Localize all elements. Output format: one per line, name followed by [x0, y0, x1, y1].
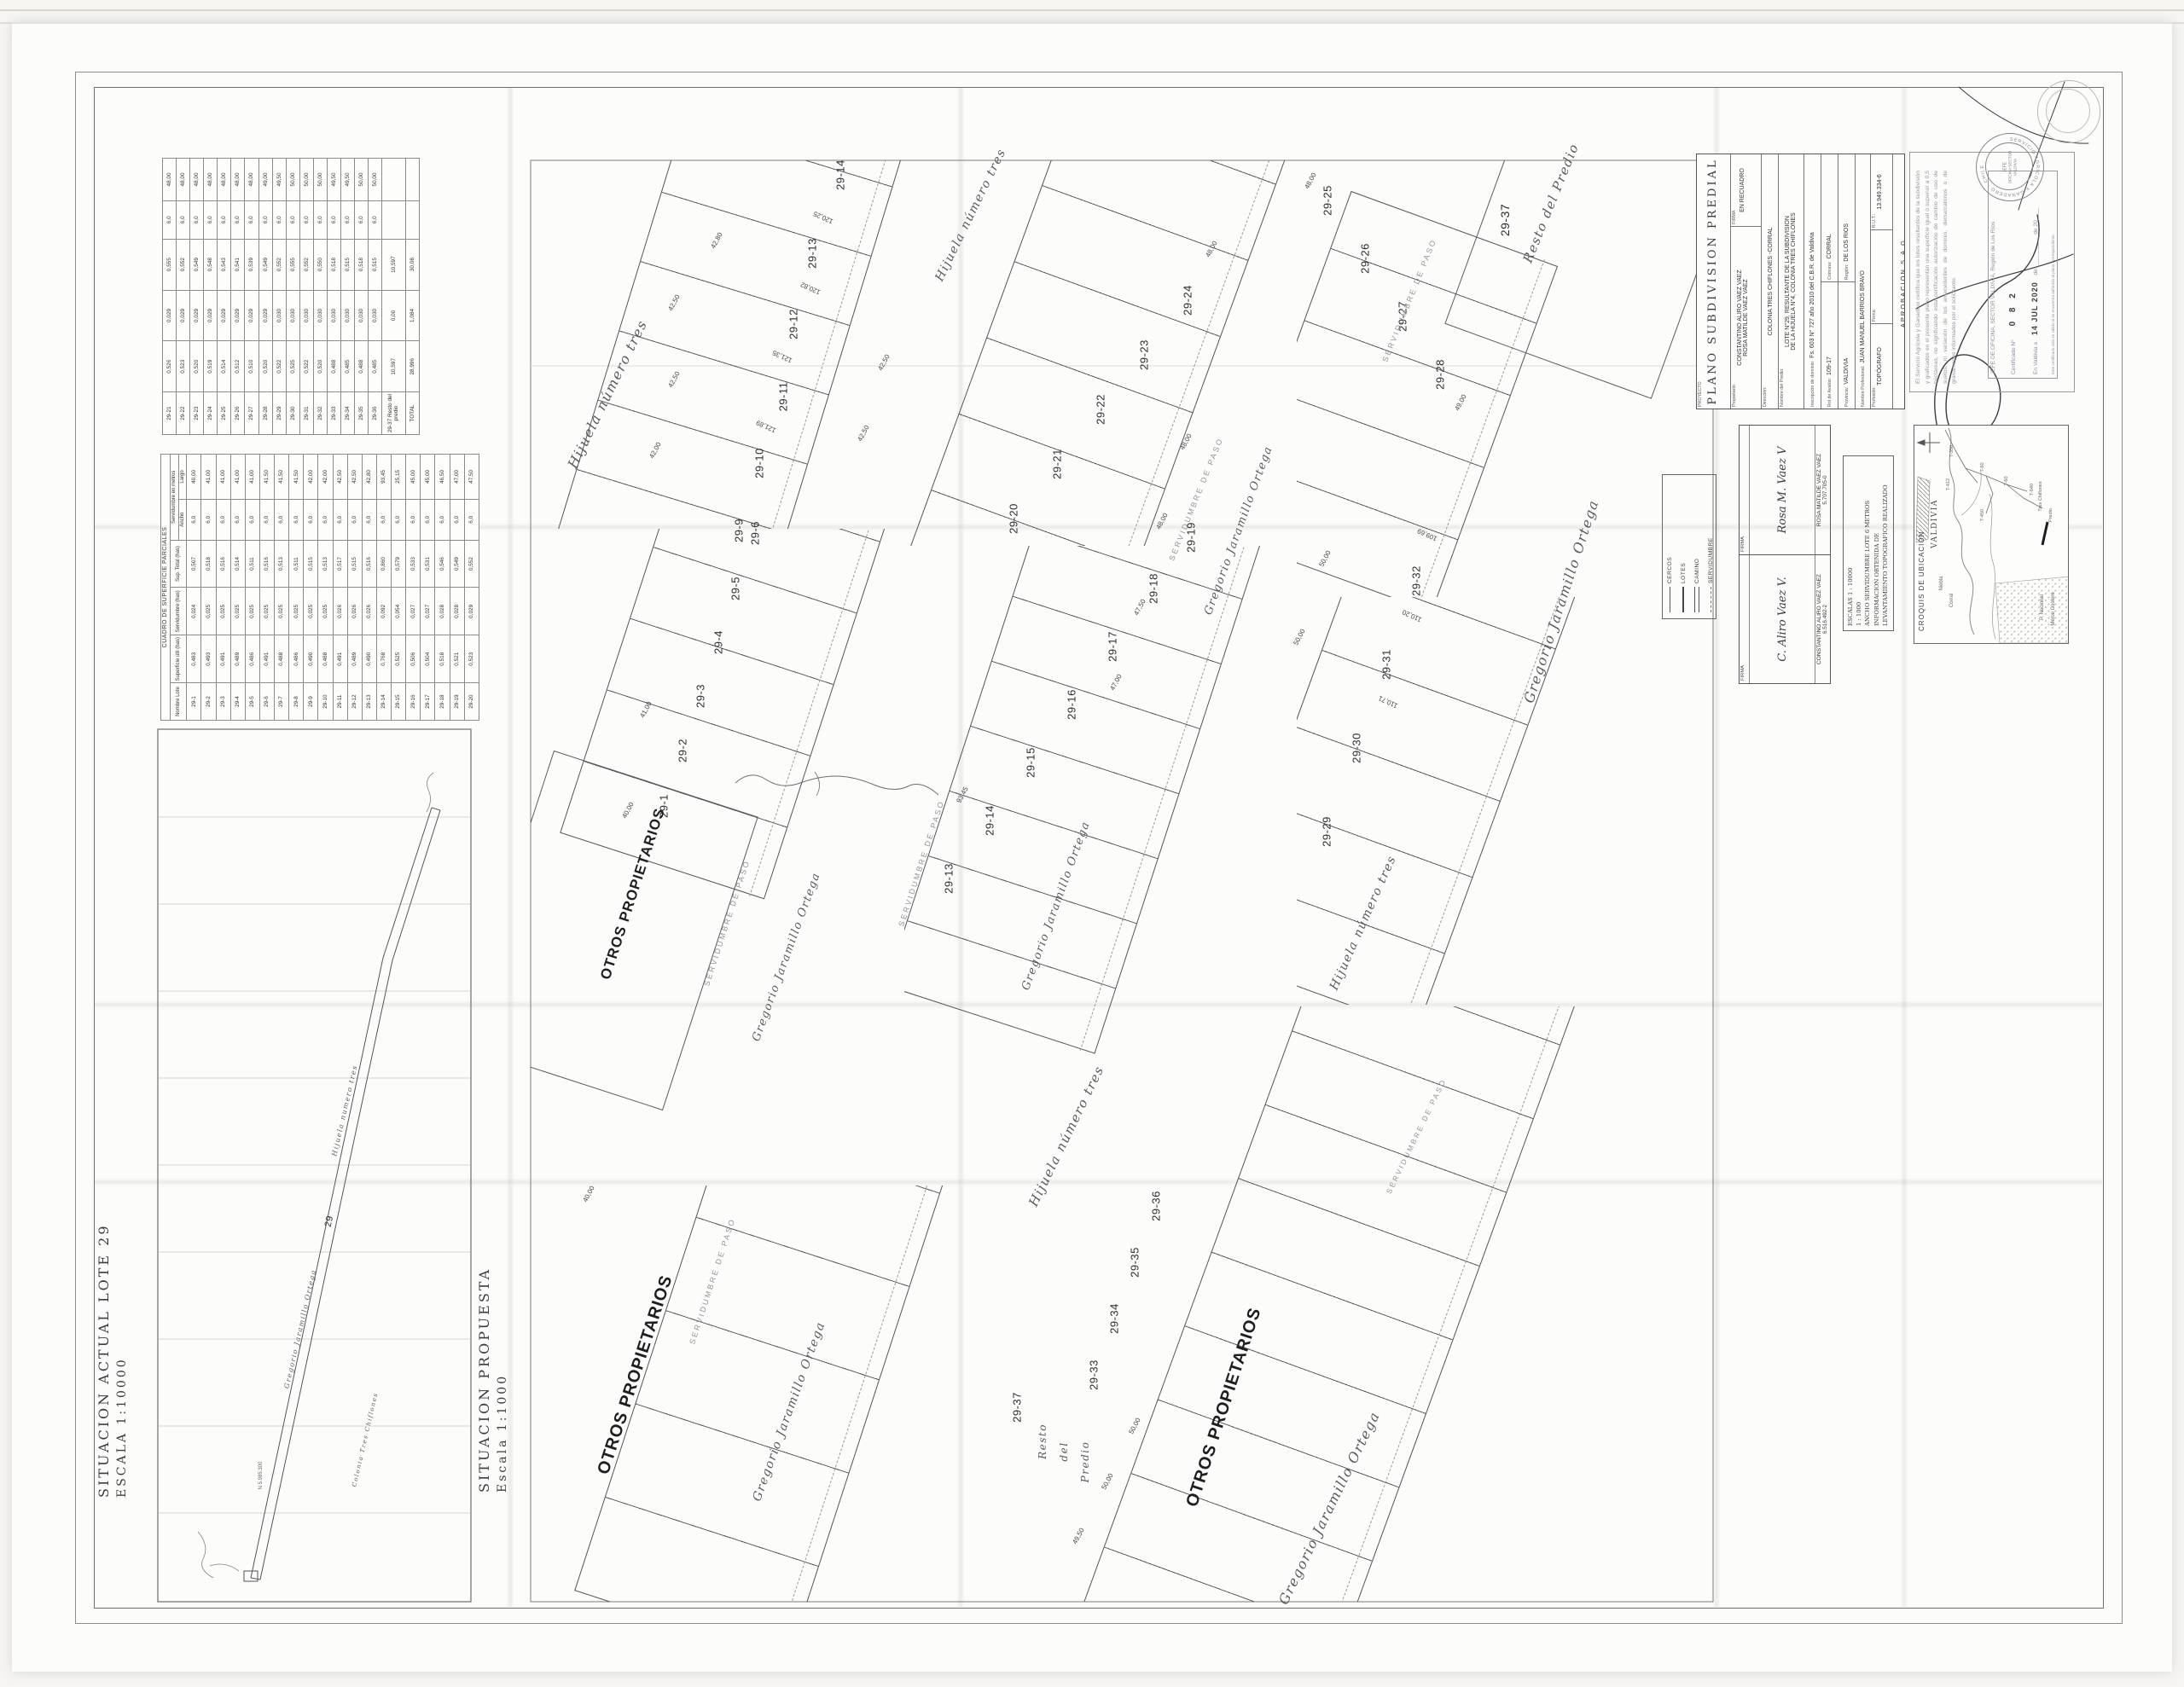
plan-label: 48,00	[1204, 240, 1218, 258]
lot-label-29-3: 29-3	[694, 684, 707, 708]
table-cell: 0,030	[327, 290, 340, 341]
table-cell: 0,517	[333, 540, 347, 588]
lot-label-29-36: 29-36	[1150, 1191, 1163, 1221]
region-label: Región:	[1844, 264, 1850, 280]
provincia-value: VALDIVIA	[1844, 358, 1850, 385]
legend-item-camino: CAMINO	[1690, 478, 1704, 616]
plan-label: 50,00	[1292, 628, 1306, 646]
plan-label: 50,00	[1127, 1417, 1141, 1435]
lot-label-29-14: 29-14	[834, 159, 847, 190]
table-cell: 0,507	[187, 540, 201, 588]
table-cell: 0,579	[392, 540, 406, 588]
table-cell: 0,531	[421, 540, 435, 588]
table-cell: 40,00	[187, 455, 201, 500]
direccion-value: COLONIA TRES CHIFLONES -CORRAL	[1768, 156, 1774, 407]
neighbor-label: Gregorio Jaramillo Ortega	[750, 871, 823, 1043]
lot-label-29-29: 29-29	[1321, 816, 1333, 847]
table-cell: 48,00	[231, 159, 245, 201]
table-cell: 0,512	[231, 341, 245, 392]
table-cell: 6,0	[362, 499, 376, 540]
table-row: 29-280,5200,0290,5496,049,00	[258, 159, 272, 435]
table-cell: 0,518	[355, 239, 369, 290]
hijuela-label: Hijuela número tres	[932, 147, 1008, 284]
table-cell: 0,520	[258, 341, 272, 392]
table-cell: 42,50	[333, 455, 347, 500]
table-row: 29-180,5180,0280,5466,046,50	[435, 455, 450, 721]
provincia-label: Provincia:	[1844, 387, 1850, 407]
table-cell: 0,548	[204, 239, 218, 290]
lotes-line-sample	[1682, 587, 1684, 612]
lot-label-29-32: 29-32	[1410, 565, 1423, 596]
plan-label: 50,00	[1317, 549, 1332, 568]
situacion-propuesta-caption: SITUACION PROPUESTA Escala 1:1000	[476, 1235, 531, 1493]
servidumbre-label: SERVIDUMBRE DE PASO	[688, 1217, 736, 1346]
table-cell: 29-23	[190, 392, 204, 435]
signature-box-rosa: FIRMA Rosa M. Vaez V ROSA MATILDE VAEZ V…	[1739, 425, 1831, 554]
table-cell: 0,523	[177, 341, 190, 392]
table-cell: 0,549	[190, 239, 204, 290]
table-cell: 6,0	[163, 200, 177, 239]
rol-value: 109-17	[1827, 357, 1833, 375]
table-cell: 0,523	[464, 635, 479, 683]
otros-propietarios-label: OTROS PROPIETARIOS	[597, 806, 669, 982]
table-cell: 6,0	[177, 200, 190, 239]
table-cell: 0,550	[313, 239, 327, 290]
table-row: 29-170,5040,0270,5316,045,00	[421, 455, 435, 721]
table-cell: 0,526	[163, 341, 177, 392]
table-row: 29-330,4880,0300,5186,049,50	[327, 159, 340, 435]
table-superficie-parciales: CUADRO DE SUPERFICIE PARCIALES Nombre Lo…	[160, 454, 479, 721]
col-header: Ancho	[178, 499, 187, 540]
note-line: LEVANTAMIENTO TOPOGRAFICO REALIZADO	[1881, 461, 1890, 626]
plan-label: 48,00	[1303, 171, 1317, 190]
table-row: 29-220,5230,0290,5526,048,00	[177, 159, 190, 435]
plan-label: Niebla	[1939, 576, 1944, 590]
table-cell: 0,486	[289, 635, 304, 683]
plan-label: T-450	[1980, 509, 1985, 521]
table-cell	[405, 159, 419, 201]
plan-label: T-412	[1946, 478, 1951, 490]
table-cell: 29-20	[464, 683, 479, 721]
table-cell: 29-10	[318, 683, 333, 721]
table-cell: 6,0	[231, 200, 245, 239]
table-cell	[405, 200, 419, 239]
table-row: 29-300,5250,0300,5556,050,00	[286, 159, 299, 435]
table-cell: 47,50	[464, 455, 479, 500]
table-cell: 29-15	[392, 683, 406, 721]
table-cell: 0,054	[392, 588, 406, 635]
lot-label-29-20: 29-20	[1008, 503, 1020, 534]
signature-boxes: FIRMA C. Aliro Vaez V. CONSTANTINO ALIRO…	[1739, 425, 1833, 684]
table-cell: 0,030	[369, 290, 382, 341]
table-cell: 48,00	[177, 159, 190, 201]
table-row: 29-160,5060,0270,5336,045,00	[406, 455, 421, 721]
table-cell: 0,025	[304, 588, 318, 635]
table-cell: 0,029	[218, 290, 231, 341]
table-cell: 0,029	[190, 290, 204, 341]
table-row: 29-250,5140,0290,5436,048,00	[218, 159, 231, 435]
comuna-value: CORRAL	[1827, 234, 1833, 258]
table-cell	[382, 159, 405, 201]
certificado-label: Certificado N°	[2011, 339, 2017, 374]
table-cell: 6,0	[299, 200, 313, 239]
table-cell: 0,518	[327, 239, 340, 290]
plan-label: 49,00	[1453, 393, 1467, 412]
lot-label-29-15: 29-15	[1025, 747, 1037, 778]
table-cell: 0,029	[163, 290, 177, 341]
lot-label-29-11: 29-11	[777, 382, 790, 412]
table-cell: 0,549	[450, 540, 464, 588]
plan-title: PLANO SUBDIVISION PREDIAL	[1706, 156, 1719, 407]
profesional-label: Nombre Profesional:	[1861, 366, 1866, 407]
table-cell: 0,029	[464, 588, 479, 635]
table-cell: 29-5	[245, 683, 259, 721]
table-cell: 0,552	[299, 239, 313, 290]
hijuela-label: Hijuela número tres	[565, 317, 651, 471]
col-header-group: Servidumbre en metros	[170, 455, 178, 541]
proyecto-label: PROYECTO	[1698, 156, 1703, 407]
cercos-line-sample	[1670, 587, 1670, 612]
situacion-propuesta-title: SITUACION PROPUESTA	[476, 1235, 492, 1493]
table-cell: 6,0	[464, 499, 479, 540]
table-cell: 45,00	[421, 455, 435, 500]
plan-label: 47,50	[1132, 598, 1147, 617]
table-cell: 29-14	[376, 683, 391, 721]
table-cell: 6,0	[318, 499, 333, 540]
table-cell: 0,493	[201, 635, 216, 683]
table-cell: 0,026	[333, 588, 347, 635]
note-line: 1 : 1000	[1855, 461, 1863, 626]
neighbor-label: Gregorio Jaramillo Ortega	[282, 1268, 317, 1389]
table-cell: 1,084	[405, 290, 419, 341]
table-cell: 6,0	[392, 499, 406, 540]
table-cell: 0,511	[289, 540, 304, 588]
table-cell: 6,0	[450, 499, 464, 540]
table-cell: 41,00	[201, 455, 216, 500]
table-row: 29-210,5260,0290,5556,048,00	[163, 159, 177, 435]
plan-label: 42,50	[876, 353, 891, 372]
table-cell: 0,515	[369, 239, 382, 290]
table-cell: 0,025	[230, 588, 245, 635]
table-row: 29-20,4930,0250,5186,041,00	[201, 455, 216, 721]
table-cell: 49,50	[327, 159, 340, 201]
plan-label: 41,00	[638, 700, 653, 719]
table-cell: 0,768	[376, 635, 391, 683]
table-cell: 0,485	[369, 341, 382, 392]
inscripcion-label: Inscripción de dominio:	[1810, 361, 1815, 407]
lot-label-29-2: 29-2	[677, 739, 689, 762]
table-cell: 0,549	[258, 239, 272, 290]
table-cell: 0,520	[313, 341, 327, 392]
table-cell: 6,0	[201, 499, 216, 540]
croquis-valdivia-label: VALDIVIA	[1931, 499, 1939, 548]
table-cell: 29-3	[216, 683, 230, 721]
table-cell: 0,026	[347, 588, 362, 635]
lot-label-29-30: 29-30	[1350, 733, 1363, 763]
table-cell: 0,030	[272, 290, 286, 341]
plan-label: Resto	[1037, 1423, 1048, 1459]
table-cell: 0,519	[204, 341, 218, 392]
plan-label: Merce Costero	[2051, 592, 2056, 625]
lot-label-29-35: 29-35	[1129, 1247, 1141, 1278]
table-row: TOTAL28,9961,08430,08	[405, 159, 419, 435]
table-row: 29-140,7680,0920,8606,093,45	[376, 455, 391, 721]
table-cell: 42,00	[304, 455, 318, 500]
table-cell: 6,0	[289, 499, 304, 540]
table-cell: 29-24	[204, 392, 218, 435]
table-cell: 0,555	[286, 239, 299, 290]
table-cell: 0,539	[245, 239, 258, 290]
table-row: 29-150,5250,0540,5796,025,15	[392, 455, 406, 721]
table-row: 29-240,5190,0290,5486,048,00	[204, 159, 218, 435]
table-cell: 29-19	[450, 683, 464, 721]
table-cell: 29-31	[299, 392, 313, 435]
table-cell: 0,860	[376, 540, 391, 588]
lot-label-29-9: 29-9	[733, 519, 746, 542]
table-cell: 6,0	[406, 499, 421, 540]
note-line: INFORMACION OBTENIDA DE	[1873, 461, 1881, 626]
table-cell: 29-8	[289, 683, 304, 721]
neighbor-label: Gregorio Jaramillo Ortega	[1275, 1409, 1383, 1608]
table-cell: 0,506	[406, 635, 421, 683]
table-row: 29-110,4910,0260,5176,042,50	[333, 455, 347, 721]
plan-label: 50,00	[1100, 1472, 1114, 1491]
table-row: 29-80,4860,0250,5116,041,50	[289, 455, 304, 721]
col-header: Sup. Total (has)	[170, 540, 186, 588]
table-cell: 29-4	[230, 683, 245, 721]
table-cell: 6,0	[327, 200, 340, 239]
comuna-label: Comuna:	[1827, 262, 1833, 281]
table-cell: 0,027	[406, 588, 421, 635]
lot-label-29-5: 29-5	[729, 577, 742, 600]
certificado-numero: 0 8 2	[2008, 290, 2018, 326]
table-cell: 0,525	[392, 635, 406, 683]
plan-label: 110,71	[1377, 694, 1398, 710]
table-cell: 0,026	[362, 588, 376, 635]
aprobacion-sag-label: APROBACION S.A.G.	[1899, 235, 1904, 328]
table-cell: 0,488	[327, 341, 340, 392]
table-cell: 0,504	[421, 635, 435, 683]
table-cell: 29-1	[187, 683, 201, 721]
table-cell: 6,0	[421, 499, 435, 540]
lot-label-29-21: 29-21	[1051, 449, 1064, 479]
table-cell: 41,50	[289, 455, 304, 500]
table-cell: 48,00	[204, 159, 218, 201]
neighbor-label: Gregorio Jaramillo Ortega	[1520, 497, 1601, 704]
neighbor-label: Gregorio Jaramillo Ortega	[1019, 820, 1093, 992]
plan-label: T-350	[1949, 445, 1955, 457]
svg-text:SERVICIO AGRICOLA Y GANADERO ·: SERVICIO AGRICOLA Y GANADERO · CHILE ·	[1980, 137, 2040, 197]
table-cell: 0,552	[464, 540, 479, 588]
plan-label: 121,89	[755, 419, 777, 434]
table-cell: 29-2	[201, 683, 216, 721]
table-cell: 50,00	[369, 159, 382, 201]
lot-label-29-6: 29-6	[749, 521, 762, 545]
situacion-propuesta-scale: Escala 1:1000	[496, 1235, 509, 1493]
table-row: 29-260,5120,0290,5416,048,00	[231, 159, 245, 435]
lot-label-29-31: 29-31	[1380, 649, 1393, 680]
fine-print: Este certificado sólo es válido si se en…	[2051, 175, 2055, 374]
situacion-actual-caption: SITUACION ACTUAL LOTE 29 ESCALA 1:10000	[96, 1235, 150, 1498]
rut-value: 13.949.334-6	[1877, 156, 1883, 228]
col-header: Largo	[178, 455, 187, 500]
table-row: 29-50,4860,0250,5116,041,00	[245, 455, 259, 721]
table-cell: 0,490	[304, 635, 318, 683]
table-cell: 0,491	[216, 635, 230, 683]
table-cell: 50,00	[286, 159, 299, 201]
lot-label-29-23: 29-23	[1138, 339, 1151, 370]
note-line: ESCALAS 1 : 10000	[1846, 461, 1855, 626]
legend-item-lotes: LOTES	[1676, 478, 1690, 616]
table-cell: 50,00	[313, 159, 327, 201]
table-cell: 0,533	[406, 540, 421, 588]
table-cell: 29-22	[177, 392, 190, 435]
table-cell: 0,521	[450, 635, 464, 683]
table-cell: 29-29	[272, 392, 286, 435]
table-cell: 0,543	[218, 239, 231, 290]
firma-label: FIRMA	[1732, 156, 1737, 224]
table-cell: 0,520	[190, 341, 204, 392]
table-cell: 48,00	[163, 159, 177, 201]
profesion-value: TOPÓGRAFO	[1877, 326, 1883, 407]
lot-label-29-13: 29-13	[806, 238, 819, 269]
table-cell: 0,516	[362, 540, 376, 588]
legend-item-cercos: CERCOS	[1663, 478, 1676, 616]
signature-script: Rosa M. Vaez V	[1750, 426, 1815, 554]
col-header: Servidumbre (has)	[170, 588, 186, 635]
otros-propietarios-label: OTROS PROPIETARIOS	[594, 1272, 677, 1476]
table-cell: 0,491	[259, 635, 274, 683]
sag-certificate-text-block: El Servicio Agrícola y Ganadero certific…	[1914, 171, 1986, 384]
plan-label: T-640	[2030, 484, 2035, 496]
table-cell: 0,546	[435, 540, 450, 588]
plan-label: 42,50	[856, 424, 870, 443]
profesional-value: JUAN MANUEL BARRIOS BRAVO	[1860, 270, 1866, 363]
grid-coordinate-label: N 5.985.300	[258, 1462, 264, 1490]
table-cell: 29-37 Resto del predio	[382, 392, 405, 435]
lot-label-29-24: 29-24	[1182, 285, 1194, 316]
table-cell: 6,0	[190, 200, 204, 239]
signer-name: CONSTANTINO ALIRO VAEZ VAEZ	[1815, 555, 1822, 683]
table-cell: 29-30	[286, 392, 299, 435]
plan-label: P. Nacional	[2040, 594, 2045, 620]
table-cell: 50,00	[355, 159, 369, 201]
firma-header: FIRMA	[1740, 555, 1750, 683]
situacion-actual-title: SITUACION ACTUAL LOTE 29	[96, 1235, 112, 1498]
table-cell: 46,50	[435, 455, 450, 500]
table-cell: 0,030	[341, 290, 355, 341]
table-cell: 0,486	[245, 635, 259, 683]
table-cell: 6,0	[435, 499, 450, 540]
plan-label: Tres Chiflones	[2038, 481, 2043, 511]
hijuela-label: Hijuela número tres	[1327, 854, 1399, 993]
lot-label-29-26: 29-26	[1359, 243, 1372, 274]
table-superficie-continuation: 29-210,5260,0290,5556,048,0029-220,5230,…	[162, 158, 420, 435]
table-cell: 0,514	[230, 540, 245, 588]
table-cell: 0,025	[245, 588, 259, 635]
table-row: 29-320,5200,0300,5506,050,00	[313, 159, 327, 435]
table-cell: 0,491	[333, 635, 347, 683]
hijuela-label: Hijuela numero tres	[330, 1064, 359, 1157]
table-cell: 42,50	[347, 455, 362, 500]
region-value: DE LOS RIOS	[1844, 223, 1850, 262]
table-cell: 29-27	[245, 392, 258, 435]
table-cell: 0,518	[435, 635, 450, 683]
table-cell: 29-28	[258, 392, 272, 435]
table-cell: 29-7	[275, 683, 289, 721]
propietario-1: CONSTANTINO ALIRO VAEZ VAEZ	[1737, 229, 1743, 407]
table-cell: 10,597	[382, 341, 405, 392]
lot-label-29-25: 29-25	[1321, 185, 1334, 216]
table-cell: 29-35	[355, 392, 369, 435]
servidumbre-label: SERVIDUMBRE DE PASO	[1385, 1077, 1448, 1196]
lot-label-29-37: 29-37	[1011, 1392, 1024, 1423]
table-cell: 49,50	[341, 159, 355, 201]
legend-item-servidumbre: SERVIDUMBRE	[1704, 478, 1717, 616]
table-cell: 29-32	[313, 392, 327, 435]
plan-label: 93,45	[955, 786, 969, 804]
table-cell: 0,516	[216, 540, 230, 588]
plan-label: 120,82	[799, 281, 822, 296]
table-cell: 93,45	[376, 455, 391, 500]
neighbor-label: Gregorio Jaramillo Ortega	[750, 1319, 828, 1503]
table-cell: 45,00	[406, 455, 421, 500]
table-cell: 0,092	[376, 588, 391, 635]
table-cell: 0,030	[286, 290, 299, 341]
predio-1: LOTE N°29, RESULTANTE DE LA SUBDIVISION	[1785, 156, 1791, 407]
table-cell: 0,030	[299, 290, 313, 341]
table-cell: 0,025	[318, 588, 333, 635]
table-cell: 29-21	[163, 392, 177, 435]
lot-label-29-17: 29-17	[1107, 631, 1119, 662]
table-row: 29-270,5100,0290,5396,048,00	[245, 159, 258, 435]
signature-script: C. Aliro Vaez V.	[1750, 555, 1815, 683]
lot-29-label: 29	[323, 1215, 336, 1228]
table-cell: 0,555	[163, 239, 177, 290]
col-header: Nombre Lote	[170, 683, 186, 721]
table-cell: 29-36	[369, 392, 382, 435]
table-cell: 0,552	[272, 239, 286, 290]
plan-label: 42,50	[666, 293, 681, 312]
table-cell: 0,029	[245, 290, 258, 341]
table-cell: 0,513	[318, 540, 333, 588]
table-row: 29-340,4850,0300,5156,049,50	[341, 159, 355, 435]
plan-label: Corral	[1949, 594, 1955, 607]
otros-propietarios-label: OTROS PROPIETARIOS	[1182, 1305, 1265, 1509]
table-row: 29-90,4900,0250,5156,042,00	[304, 455, 318, 721]
table-cell: 0,511	[245, 540, 259, 588]
firma-header: FIRMA	[1740, 426, 1750, 554]
table-cell: 0,025	[201, 588, 216, 635]
table-cell: 6,0	[245, 200, 258, 239]
table-cell: TOTAL	[405, 392, 419, 435]
table-row: 29-10,4830,0240,5076,040,00	[187, 455, 201, 721]
table-cell: 6,0	[245, 499, 259, 540]
table-row: 29-190,5210,0280,5496,047,00	[450, 455, 464, 721]
table-cell: 29-16	[406, 683, 421, 721]
table-cell: 0,515	[347, 540, 362, 588]
plan-label: 42,50	[666, 370, 681, 389]
lot-label-29-28: 29-28	[1434, 359, 1447, 390]
notes-box: ESCALAS 1 : 10000 1 : 1000 ANCHO SERVIDU…	[1843, 454, 1896, 631]
servidumbre-label: SERVIDUMBRE DE PASO	[702, 859, 751, 988]
lot-label-29-10: 29-10	[753, 448, 766, 478]
table-cell: 41,50	[259, 455, 274, 500]
plan-label: 40,00	[620, 801, 635, 820]
table-cell: 29-11	[333, 683, 347, 721]
table-cell: 0,490	[362, 635, 376, 683]
table-cell: 48,00	[190, 159, 204, 201]
